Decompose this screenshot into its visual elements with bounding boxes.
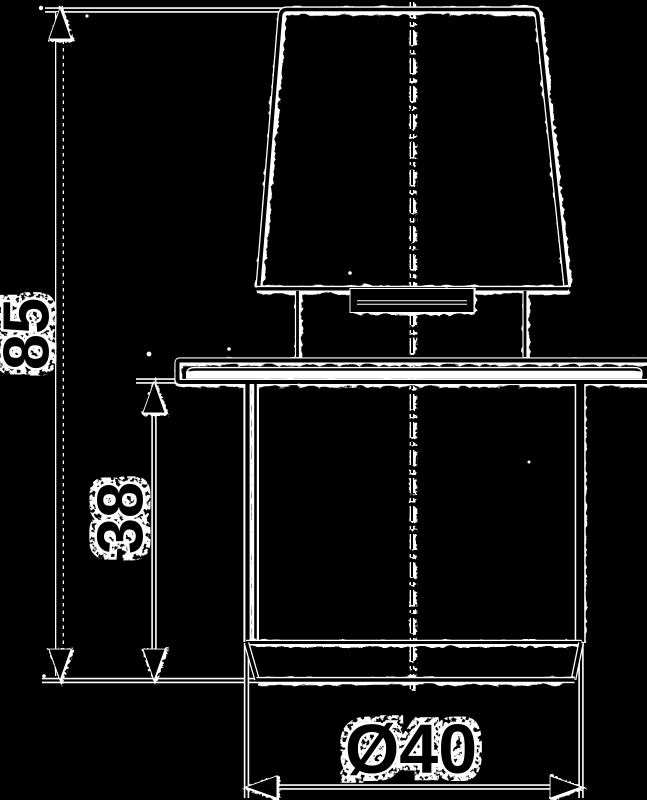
- svg-text:85: 85: [0, 298, 63, 370]
- svg-text:38: 38: [84, 482, 157, 554]
- svg-text:Ø40: Ø40: [345, 710, 477, 788]
